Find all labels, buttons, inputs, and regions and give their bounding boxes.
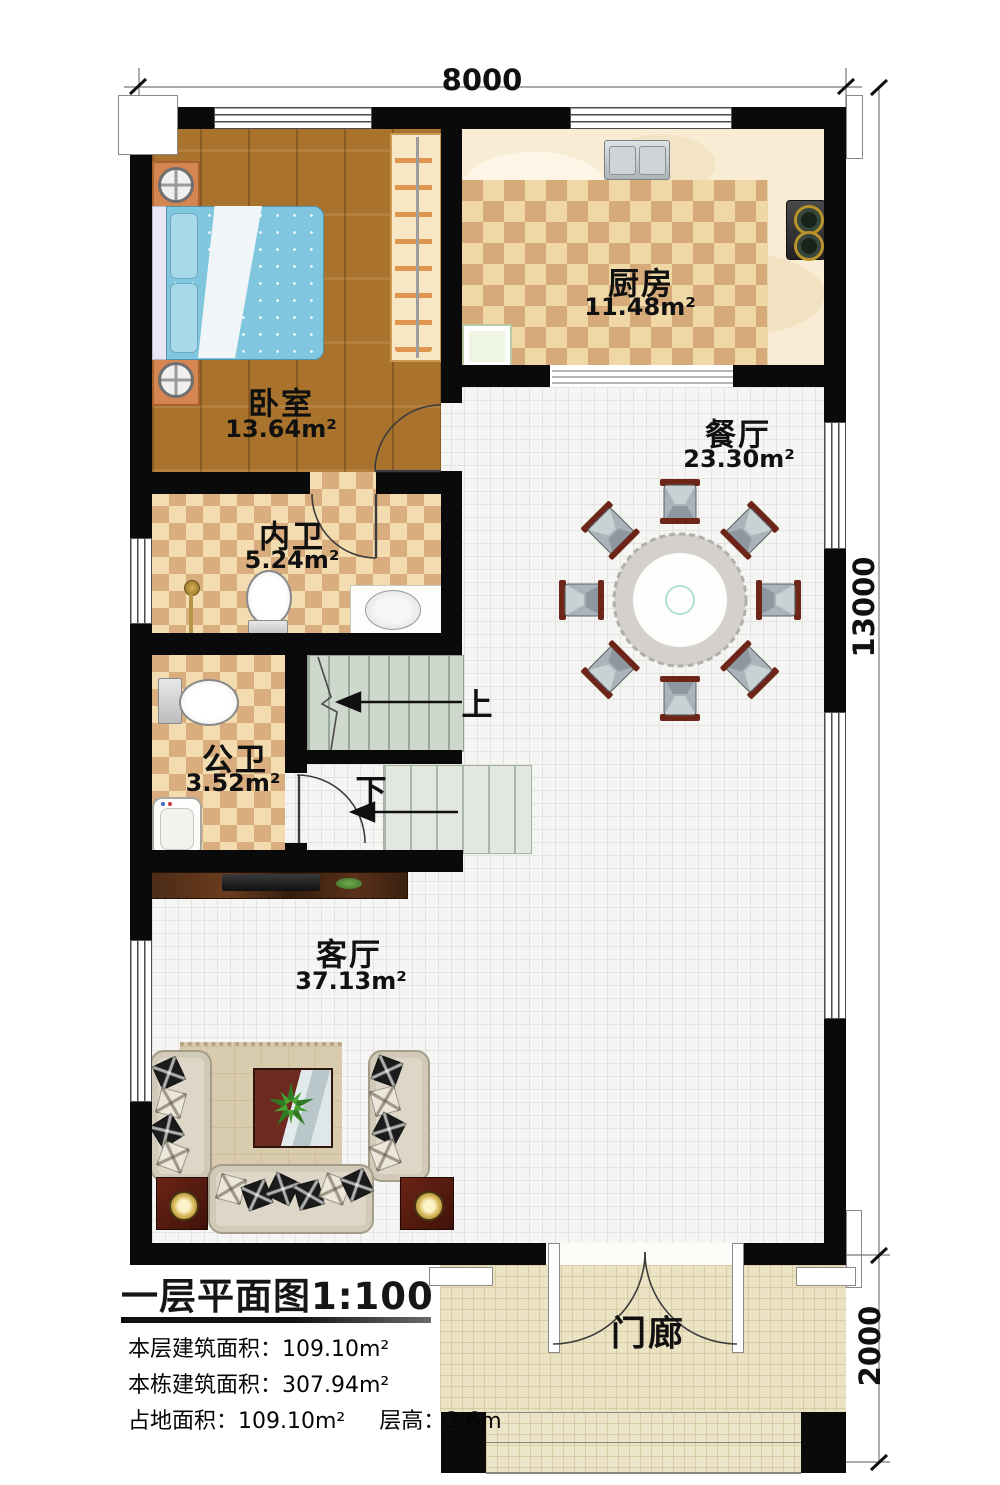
wall-innerbath-stub <box>376 472 441 494</box>
room-area-kitchen: 11.48m² <box>584 293 695 321</box>
dim-width-top: 8000 <box>442 63 523 97</box>
window-kitchen-top <box>570 107 732 129</box>
wardrobe-pole <box>416 137 419 358</box>
shower-basin <box>160 808 194 850</box>
room-area-dining: 23.30m² <box>683 445 794 473</box>
decor-plant-icon <box>336 878 362 889</box>
wash-basin <box>365 590 421 630</box>
stat-label: 层高： <box>379 1409 445 1434</box>
dim-height-porch: 2000 <box>853 1306 887 1387</box>
stat-label: 本栋建筑面积： <box>128 1373 282 1398</box>
stairs-lower-flight <box>383 765 532 854</box>
bed-pillow <box>170 213 198 279</box>
stat-value: 307.94m² <box>282 1373 389 1398</box>
sink-bowl <box>639 146 666 175</box>
table-lamp-icon <box>169 1191 199 1221</box>
sill-top-right <box>846 95 863 159</box>
cold-tap-icon <box>161 802 165 806</box>
window-living-left <box>130 940 152 1102</box>
hanger-rail-icon <box>395 143 432 352</box>
toilet-bowl <box>179 679 239 726</box>
kitchen-sink <box>604 140 670 180</box>
plan-title: 一层平面图1:100 <box>121 1266 434 1320</box>
room-area-inner-bath: 5.24m² <box>245 546 340 574</box>
stat-label: 占地面积： <box>128 1409 238 1434</box>
lamp-icon <box>158 167 194 203</box>
shower-tray <box>152 797 202 857</box>
tv <box>222 874 320 891</box>
wall-right <box>824 547 846 712</box>
window-innerbath-left <box>130 538 152 624</box>
stat-footprint-height: 占地面积：109.10m²层高：3.6m <box>128 1403 502 1435</box>
stat-floor-area: 本层建筑面积：109.10m² <box>128 1331 389 1363</box>
wall-kitchen-bottom <box>733 365 824 387</box>
stat-value: 3.6m <box>445 1409 501 1434</box>
door-jamb-right <box>732 1243 744 1353</box>
room-area-living: 37.13m² <box>295 967 406 995</box>
burner-icon <box>794 231 824 261</box>
entry-steps <box>486 1412 801 1474</box>
stat-label: 本层建筑面积： <box>128 1337 282 1362</box>
vanity-counter <box>350 585 442 635</box>
room-area-public-bath: 3.52m² <box>186 769 281 797</box>
sink-bowl <box>609 146 636 175</box>
lamp-icon <box>158 362 194 398</box>
nightstand-bottom <box>152 356 200 406</box>
side-table-right <box>400 1177 454 1230</box>
side-table-left <box>156 1177 208 1230</box>
wall-stair-mid <box>307 750 462 764</box>
dim-height-main: 13000 <box>847 557 881 658</box>
hot-tap-icon <box>168 802 172 806</box>
wall-right <box>824 107 846 422</box>
fridge <box>462 324 512 369</box>
table-lamp-icon <box>414 1191 444 1221</box>
stat-value: 109.10m² <box>282 1337 389 1362</box>
sill-top-left <box>118 95 178 155</box>
wall-bedroom-kitchen <box>441 129 462 403</box>
door-jamb-left <box>548 1243 560 1353</box>
floor-plan-canvas: 8000 13000 2000 卧室 13.64m² 厨房 11.48m² 餐厅… <box>0 0 1000 1485</box>
door-threshold <box>546 1243 744 1265</box>
title-underline <box>121 1317 431 1323</box>
stairs-upper-flight <box>307 655 464 752</box>
gas-stove <box>786 200 826 260</box>
dining-table-set <box>550 470 810 730</box>
toilet-bowl <box>246 570 292 626</box>
window-dining-right <box>824 422 846 549</box>
stat-building-area: 本栋建筑面积：307.94m² <box>128 1367 389 1399</box>
sill-porch-right <box>796 1267 856 1286</box>
plant-icon <box>265 1080 317 1132</box>
kitchen-counter-lines <box>552 371 733 383</box>
porch-pier-right <box>801 1412 846 1473</box>
wall-living-band <box>130 850 463 872</box>
wall-right <box>824 1017 846 1265</box>
wall-publicbath-right <box>285 655 307 773</box>
wall-kitchen-bottom <box>441 365 550 387</box>
wall-bottom-right <box>744 1243 846 1265</box>
room-label-porch: 门廊 <box>611 1306 685 1357</box>
stair-down-label: 下 <box>356 766 387 811</box>
wall-innerbath-bottom <box>130 633 462 655</box>
wall-bottom-left <box>130 1243 546 1265</box>
window-bedroom-top <box>214 107 372 129</box>
window-living-right <box>824 712 846 1019</box>
stair-up-label: 上 <box>462 680 493 725</box>
room-area-bedroom: 13.64m² <box>225 415 336 443</box>
wall-hall-dining <box>441 471 462 655</box>
stat-value: 109.10m² <box>238 1409 345 1434</box>
wardrobe <box>390 133 442 362</box>
nightstand-top <box>152 161 200 209</box>
wall-bedroom-bottom <box>130 472 310 494</box>
bed-pillow <box>170 283 198 353</box>
sill-porch-left <box>429 1267 493 1286</box>
